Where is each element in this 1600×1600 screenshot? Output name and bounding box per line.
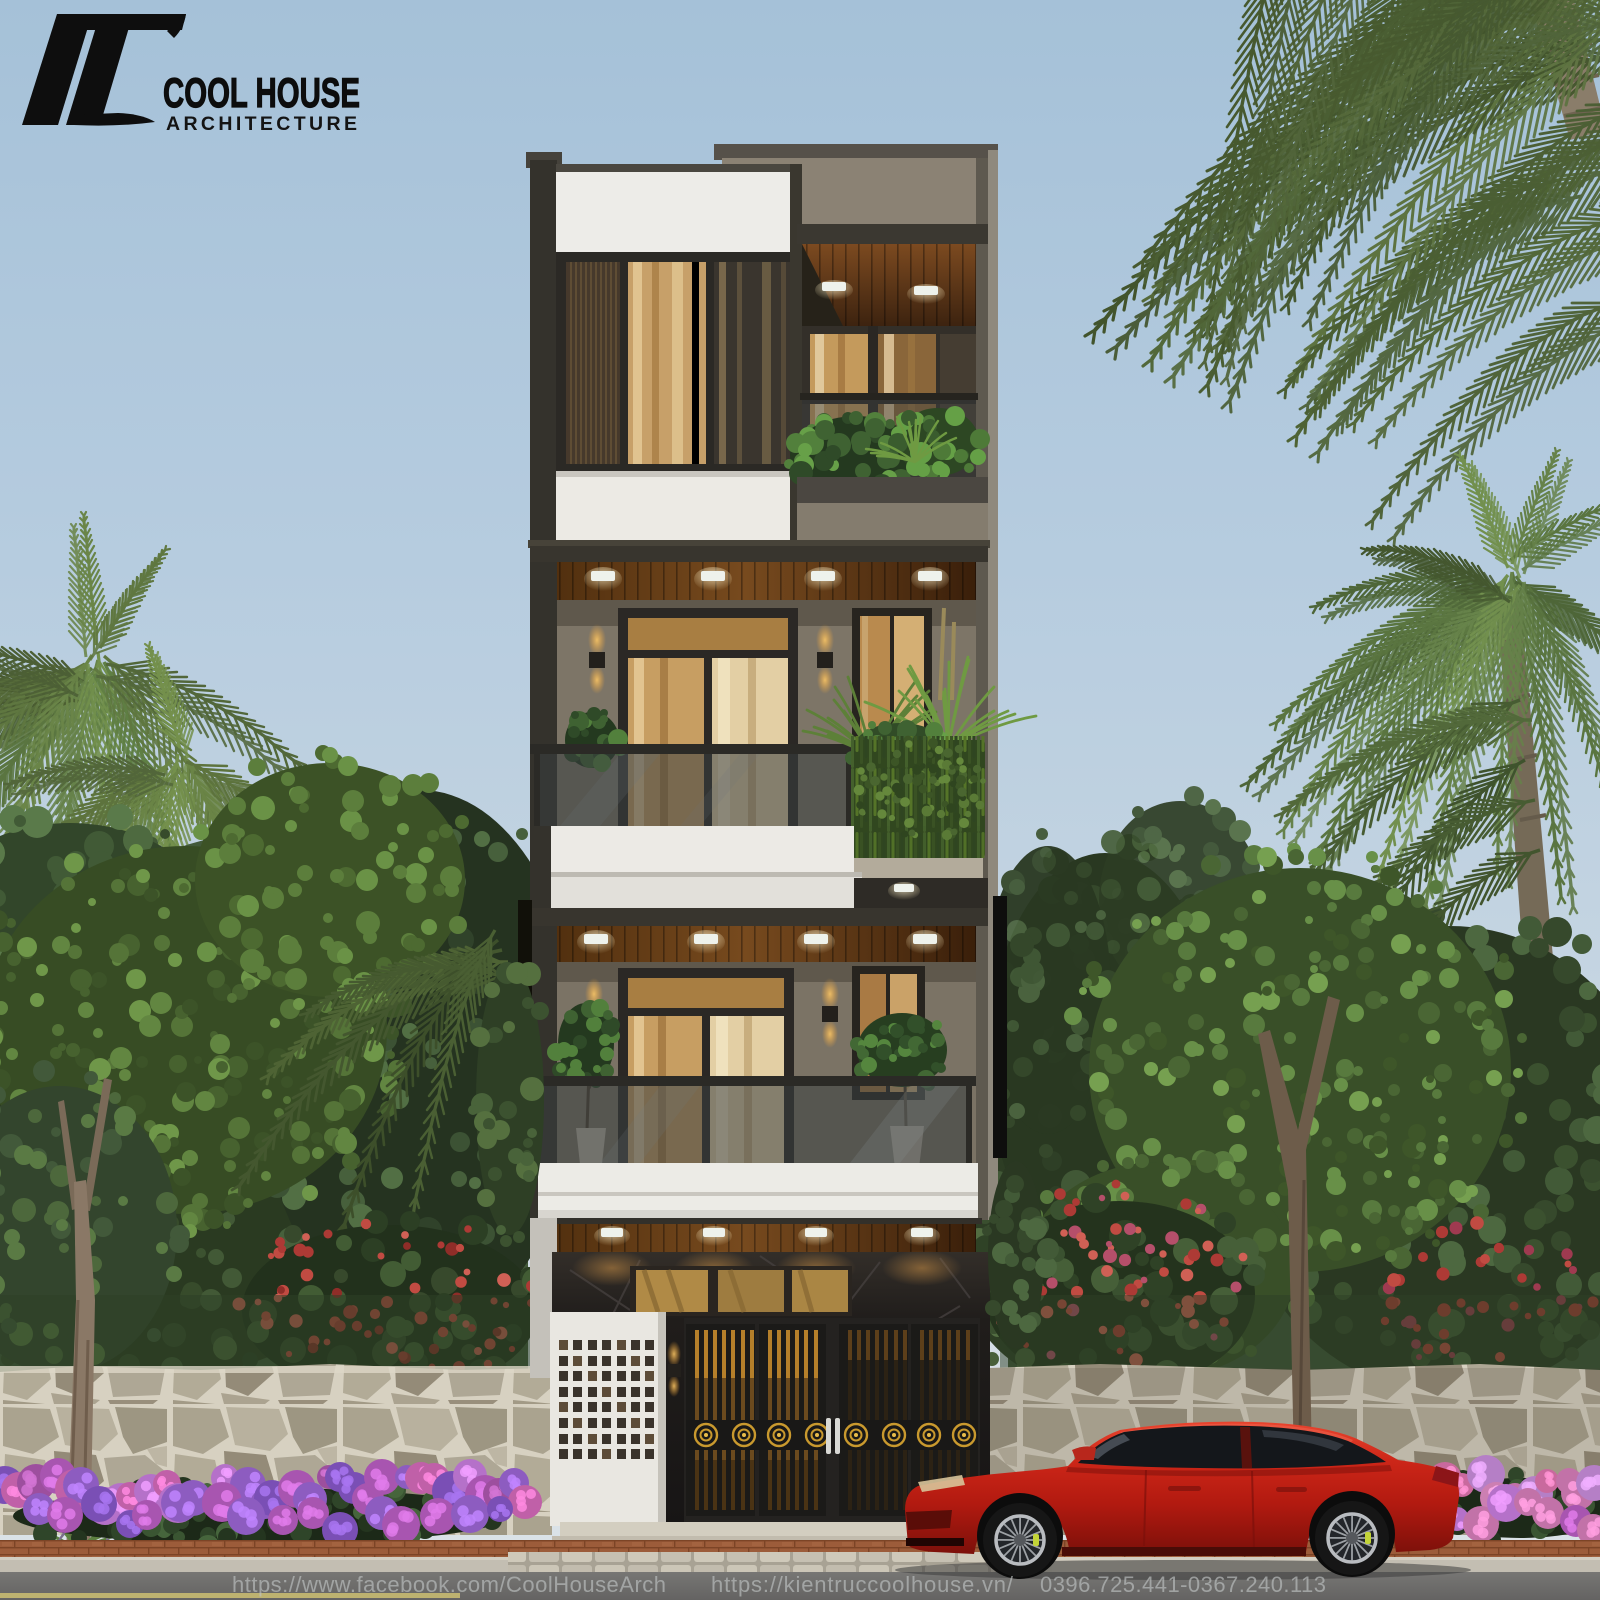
svg-text:0396.725.441-0367.240.113: 0396.725.441-0367.240.113 — [1040, 1572, 1326, 1597]
svg-text:ARCHITECTURE: ARCHITECTURE — [166, 113, 357, 135]
svg-text:https://kientruccoolhouse.vn/: https://kientruccoolhouse.vn/ — [711, 1572, 1014, 1597]
svg-text:https://www.facebook.com/CoolH: https://www.facebook.com/CoolHouseArch — [232, 1572, 666, 1597]
svg-text:COOL HOUSE: COOL HOUSE — [163, 69, 360, 116]
